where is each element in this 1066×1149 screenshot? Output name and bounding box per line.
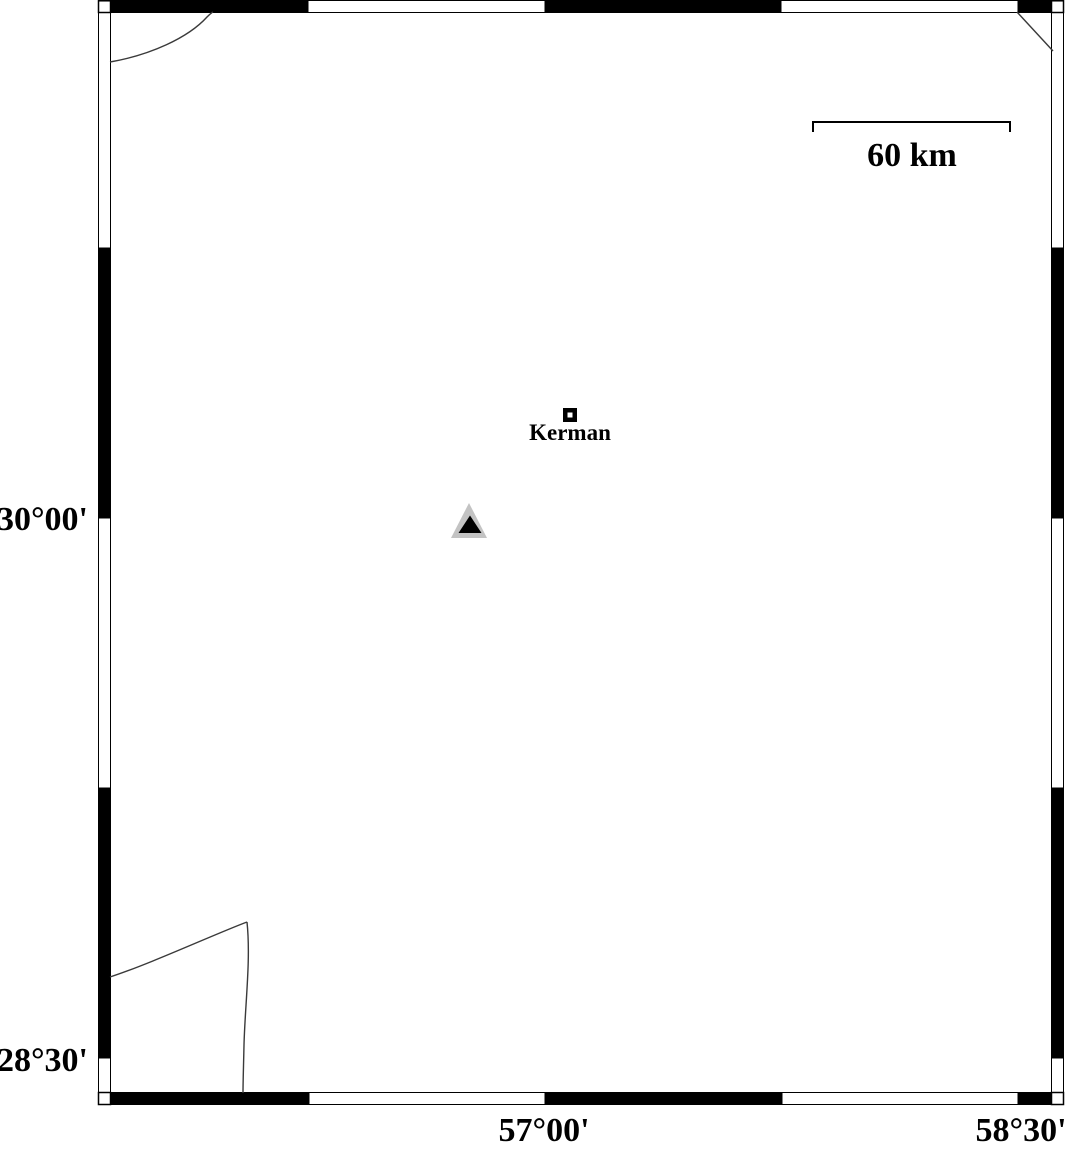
map-figure: 60 km Kerman 30°00' 28°30' 57°00' 58°30': [0, 0, 1066, 1144]
map-svg: 60 km Kerman 30°00' 28°30' 57°00' 58°30': [0, 0, 1066, 1144]
x-axis-label-58-30: 58°30': [975, 1112, 1066, 1144]
x-axis-label-57-00: 57°00': [498, 1112, 589, 1144]
y-axis-label-30-00: 30°00': [0, 501, 88, 538]
y-axis-label-28-30: 28°30': [0, 1042, 88, 1079]
city-square-icon-center: [568, 413, 573, 418]
city-label: Kerman: [529, 420, 611, 445]
scale-bar-label: 60 km: [867, 137, 957, 174]
